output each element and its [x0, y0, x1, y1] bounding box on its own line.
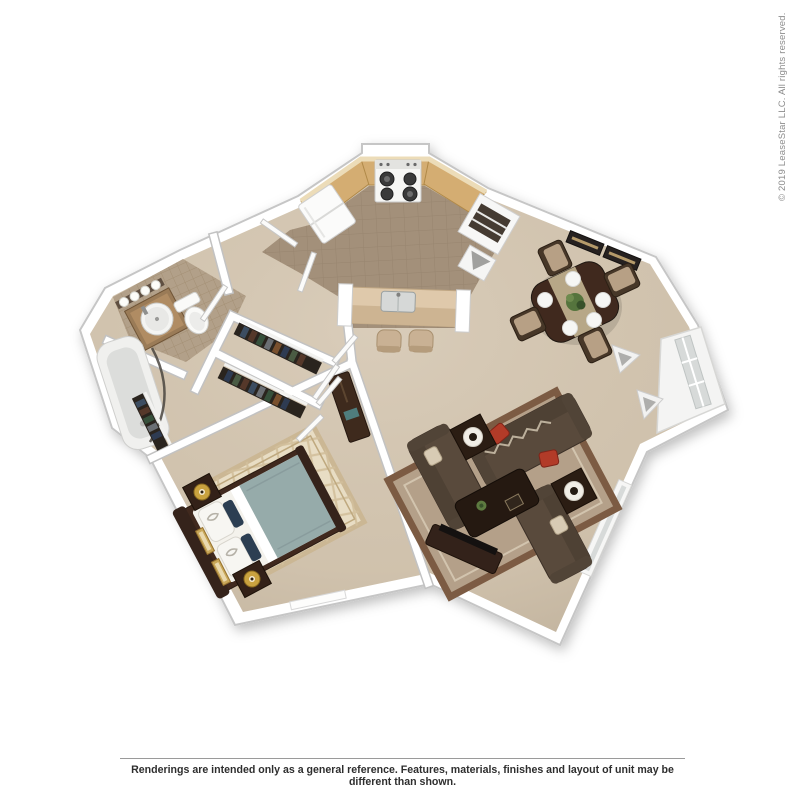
nightstand-lamp	[194, 484, 210, 500]
floor-plan-svg	[0, 0, 800, 800]
island-post-right	[455, 290, 470, 332]
floor-plan-page: © 2019 LeaseStar LLC. All rights reserve…	[0, 0, 800, 800]
dinner-plate	[587, 313, 602, 328]
nightstand-lamp	[244, 571, 260, 587]
island-post-left	[337, 284, 352, 326]
disclaimer-text: Renderings are intended only as a genera…	[120, 758, 685, 788]
table-lamp	[565, 482, 584, 501]
copyright-watermark: © 2019 LeaseStar LLC. All rights reserve…	[777, 31, 793, 201]
throw-pillow-red	[539, 449, 560, 467]
table-lamp	[464, 428, 483, 447]
dinner-plate	[538, 293, 553, 308]
bar-stool	[377, 330, 402, 353]
dinner-plate	[563, 321, 578, 336]
bar-stool	[409, 330, 434, 353]
dinner-plate	[596, 293, 611, 308]
island-sink	[381, 291, 416, 312]
stove	[375, 160, 421, 202]
dinner-plate	[566, 272, 581, 287]
